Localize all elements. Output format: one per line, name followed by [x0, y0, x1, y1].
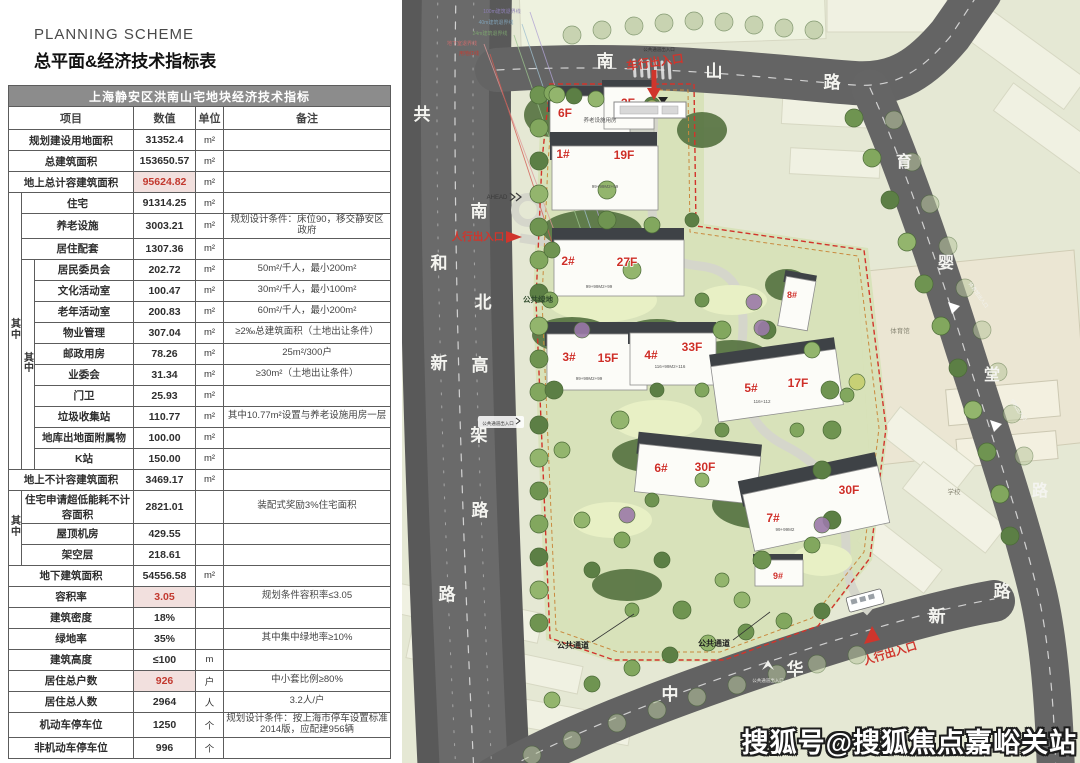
road-label-nanbei_gaojia: 南: [471, 201, 488, 221]
item-cell: 居住配套: [22, 238, 134, 259]
tree-icon: [611, 411, 629, 429]
building-label: 2#: [561, 254, 575, 268]
building-label: 99+99M2: [776, 527, 795, 532]
table-row: 架空层218.61: [9, 544, 391, 565]
tree-icon: [688, 688, 706, 706]
unit-cell: 户: [196, 670, 224, 691]
tree-icon: [530, 614, 548, 632]
tree-icon: [584, 676, 600, 692]
value-cell: 153650.57: [134, 151, 196, 172]
tree-icon: [746, 294, 762, 310]
tree-icon: [915, 275, 933, 293]
building-label: 116+112: [754, 399, 771, 404]
setback-label: 100m建筑退界线: [483, 8, 521, 15]
tree-icon: [734, 592, 750, 608]
unit-cell: m²: [196, 343, 224, 364]
tree-icon: [685, 12, 703, 30]
item-cell: 绿地率: [9, 628, 134, 649]
item-cell: 建筑高度: [9, 649, 134, 670]
tree-icon: [584, 562, 600, 578]
road-label-nanbei_gaojia: 高: [472, 355, 489, 375]
note-cell: [224, 544, 391, 565]
value-cell: 100.47: [134, 280, 196, 301]
note-cell: 3.2人/户: [224, 691, 391, 712]
watermark: 搜狐号@搜狐焦点嘉峪关站: [742, 721, 1077, 760]
tree-icon: [530, 119, 548, 137]
unit-cell: 人: [196, 691, 224, 712]
road-label-nanbei_gaojia: 路: [472, 500, 490, 520]
tree-icon: [625, 17, 643, 35]
item-cell: 居民委员会: [35, 259, 134, 280]
building-label: 17F: [788, 376, 809, 390]
tree-icon: [655, 14, 673, 32]
unit-cell: m²: [196, 469, 224, 490]
building-label: 30F: [839, 483, 860, 497]
tree-icon: [991, 485, 1009, 503]
tree-icon: [608, 714, 626, 732]
setback-label: 用地红线: [459, 50, 479, 57]
item-cell: 门卫: [35, 385, 134, 406]
tree-icon: [554, 442, 570, 458]
table-row: 非机动车停车位996个: [9, 737, 391, 758]
road-label-nanbei_gaojia: 北: [475, 293, 492, 312]
tree-icon: [949, 359, 967, 377]
value-cell: 218.61: [134, 544, 196, 565]
tree-icon: [588, 91, 604, 107]
unit-cell: [196, 628, 224, 649]
building-4: [628, 322, 716, 385]
value-cell: 35%: [134, 628, 196, 649]
tree-icon: [728, 676, 746, 694]
unit-cell: m²: [196, 301, 224, 322]
building-label: 9#: [773, 571, 783, 581]
tree-icon: [715, 573, 729, 587]
value-cell: 100.00: [134, 427, 196, 448]
road-label-yuyingtang: 堂: [984, 365, 1000, 384]
note-cell: [224, 565, 391, 586]
table-row: 总建筑面积153650.57m²: [9, 151, 391, 172]
tree-icon: [624, 660, 640, 676]
unit-cell: m²: [196, 364, 224, 385]
building-label: 116+99M2+116: [655, 364, 686, 369]
unit-cell: [196, 607, 224, 628]
group-label: 其中: [9, 193, 22, 470]
gym-label: 体育馆: [890, 326, 910, 335]
tree-icon: [654, 552, 670, 568]
item-cell: K站: [35, 448, 134, 469]
tree-icon: [545, 381, 563, 399]
tree-icon: [523, 746, 541, 763]
item-cell: 业委会: [35, 364, 134, 385]
tree-icon: [840, 388, 854, 402]
ahead-label: AHEAD: [487, 195, 508, 201]
value-cell: 200.83: [134, 301, 196, 322]
tree-icon: [530, 350, 548, 368]
building-label: 30F: [695, 460, 716, 474]
tree-icon: [823, 421, 841, 439]
tree-icon: [814, 603, 830, 619]
unit-cell: [196, 544, 224, 565]
table-row: 物业管理307.04m²≥2‰总建筑面积（土地出让条件）: [9, 322, 391, 343]
note-cell: 30m²/千人，最小100m²: [224, 280, 391, 301]
note-cell: [224, 130, 391, 151]
note-cell: 其中10.77m²设置与养老设施用房一层: [224, 406, 391, 427]
item-cell: 居住总户数: [9, 670, 134, 691]
tree-icon: [715, 13, 733, 31]
tree-icon: [598, 211, 616, 229]
unit-cell: m²: [196, 322, 224, 343]
value-cell: 2821.01: [134, 490, 196, 523]
table-row: 其中居民委员会202.72m²50m²/千人，最小200m²: [9, 259, 391, 280]
setback-label: 40m建筑退界线: [479, 19, 514, 26]
item-cell: 规划建设用地面积: [9, 130, 134, 151]
tree-icon: [530, 317, 548, 335]
building-label: 15F: [598, 351, 619, 365]
note-cell: 60m²/千人，最小200m²: [224, 301, 391, 322]
item-cell: 机动车停车位: [9, 712, 134, 737]
tree-icon: [644, 217, 660, 233]
tree-icon: [939, 237, 957, 255]
pedestrian-entrance-label: 人行出入口: [452, 230, 505, 243]
tree-icon: [574, 322, 590, 338]
note-cell: 规划设计条件：床位90，移交静安区政府: [224, 214, 391, 239]
tree-icon: [808, 655, 826, 673]
value-cell: 3469.17: [134, 469, 196, 490]
building-label: 99+99M2+99: [576, 376, 603, 381]
unit-cell: 个: [196, 712, 224, 737]
value-cell: 996: [134, 737, 196, 758]
public-channel-label-2: 公共通道: [698, 638, 730, 648]
road-label-gonghexin: 和: [431, 254, 448, 273]
school-label: 学校: [948, 487, 962, 496]
table-row: 地下建筑面积54556.58m²: [9, 565, 391, 586]
road-label-nanshan: 路: [824, 72, 842, 92]
building-label: 19F: [614, 148, 635, 162]
tree-icon: [530, 218, 548, 236]
item-cell: 建筑密度: [9, 607, 134, 628]
item-cell: 屋顶机房: [22, 523, 134, 544]
tree-icon: [530, 581, 548, 599]
value-cell: 926: [134, 670, 196, 691]
unit-cell: m²: [196, 406, 224, 427]
public-channel-entrance-label-south: 公共通道出入口: [752, 677, 784, 684]
table-row: 门卫25.93m²: [9, 385, 391, 406]
tree-icon: [849, 374, 865, 390]
unit-cell: m²: [196, 448, 224, 469]
table-row: 规划建设用地面积31352.4m²: [9, 130, 391, 151]
item-cell: 地上总计容建筑面积: [9, 172, 134, 193]
table-row: K站150.00m²: [9, 448, 391, 469]
item-cell: 邮政用房: [35, 343, 134, 364]
table-row: 建筑密度18%: [9, 607, 391, 628]
table-row: 居住总人数2964人3.2人/户: [9, 691, 391, 712]
note-cell: 其中集中绿地率≥10%: [224, 628, 391, 649]
tree-icon: [814, 517, 830, 533]
page-title-zh: 总平面&经济技术指标表: [34, 47, 216, 72]
table-row: 屋顶机房429.55: [9, 523, 391, 544]
tree-icon: [964, 401, 982, 419]
building-label: 6#: [654, 461, 668, 475]
note-cell: 25m²/300户: [224, 343, 391, 364]
tree-icon: [805, 21, 823, 39]
value-cell: 110.77: [134, 406, 196, 427]
value-cell: 78.26: [134, 343, 196, 364]
note-cell: [224, 193, 391, 214]
tree-icon: [695, 293, 709, 307]
tree-icon: [898, 233, 916, 251]
tree-icon: [845, 109, 863, 127]
note-cell: [224, 151, 391, 172]
note-cell: [224, 385, 391, 406]
item-cell: 架空层: [22, 544, 134, 565]
value-cell: 54556.58: [134, 565, 196, 586]
item-cell: 地下建筑面积: [9, 565, 134, 586]
table-row: 绿地率35%其中集中绿地率≥10%: [9, 628, 391, 649]
item-cell: 地上不计容建筑面积: [9, 469, 134, 490]
table-row: 机动车停车位1250个规划设计条件：按上海市停车设置标准2014版，应配建956…: [9, 712, 391, 737]
tree-icon: [544, 692, 560, 708]
building-label: 养老设施用房: [583, 116, 617, 124]
road-label-gonghexin: 新: [431, 353, 448, 373]
tree-icon: [563, 26, 581, 44]
road-label-nanshan: 南: [597, 51, 614, 71]
road-label-yuyingtang: 婴: [938, 254, 954, 272]
table-row: 地库出地面附属物100.00m²: [9, 427, 391, 448]
tree-icon: [745, 16, 763, 34]
table-header-row: 项目 数值 单位 备注: [9, 107, 391, 130]
note-cell: [224, 427, 391, 448]
value-cell: 31.34: [134, 364, 196, 385]
planning-scheme-page: PLANNING SCHEME 总平面&经济技术指标表 上海静安区洪南山宅地块经…: [0, 0, 1080, 763]
table-row: 地上不计容建筑面积3469.17m²: [9, 469, 391, 490]
public-green-label: 公共绿地: [523, 294, 553, 304]
item-cell: 文化活动室: [35, 280, 134, 301]
tree-icon: [804, 537, 820, 553]
tree-icon: [544, 242, 560, 258]
note-cell: 规划条件容积率≤3.05: [224, 586, 391, 607]
item-cell: 非机动车停车位: [9, 737, 134, 758]
note-cell: ≥30m²（土地出让条件）: [224, 364, 391, 385]
indicator-panel: PLANNING SCHEME 总平面&经济技术指标表 上海静安区洪南山宅地块经…: [0, 0, 402, 763]
unit-cell: m²: [196, 172, 224, 193]
table-title: 上海静安区洪南山宅地块经济技术指标: [9, 86, 391, 107]
value-cell: 1307.36: [134, 238, 196, 259]
tree-icon: [650, 383, 664, 397]
tree-icon: [754, 320, 770, 336]
public-channel-label-1: 公共通道: [557, 640, 589, 650]
building-label: 5#: [744, 381, 758, 395]
tree-icon: [673, 601, 691, 619]
value-cell: 150.00: [134, 448, 196, 469]
value-cell: 18%: [134, 607, 196, 628]
item-cell: 容积率: [9, 586, 134, 607]
tree-icon: [530, 449, 548, 467]
value-cell: ≤100: [134, 649, 196, 670]
tree-icon: [973, 321, 991, 339]
tree-icon: [921, 195, 939, 213]
unit-cell: m²: [196, 214, 224, 239]
building-label: 33F: [682, 340, 703, 354]
building-label: 7#: [766, 511, 780, 525]
table-row: 文化活动室100.47m²30m²/千人，最小100m²: [9, 280, 391, 301]
tree-icon: [695, 473, 709, 487]
col-value: 数值: [134, 107, 196, 130]
tree-icon: [566, 88, 582, 104]
tree-icon: [804, 342, 820, 358]
item-cell: 住宅: [22, 193, 134, 214]
col-unit: 单位: [196, 107, 224, 130]
tree-icon: [619, 507, 635, 523]
note-cell: ≥2‰总建筑面积（土地出让条件）: [224, 322, 391, 343]
unit-cell: m²: [196, 238, 224, 259]
note-cell: [224, 469, 391, 490]
item-cell: 总建筑面积: [9, 151, 134, 172]
col-item: 项目: [9, 107, 134, 130]
note-cell: 中小套比例≥80%: [224, 670, 391, 691]
tree-icon: [881, 191, 899, 209]
building-label: 4#: [644, 348, 658, 362]
unit-cell: m²: [196, 130, 224, 151]
road-label-yuyingtang: 路: [1032, 481, 1049, 500]
value-cell: 25.93: [134, 385, 196, 406]
table-row: 老年活动室200.83m²60m²/千人，最小200m²: [9, 301, 391, 322]
setback-label: 地下室退界线: [447, 40, 477, 47]
unit-cell: m²: [196, 259, 224, 280]
item-cell: 住宅申请超低能耗不计容面积: [22, 490, 134, 523]
tree-icon: [813, 461, 831, 479]
setback-label: 24m建筑退界线: [473, 30, 508, 37]
tree-icon: [645, 493, 659, 507]
table-row: 居住总户数926户中小套比例≥80%: [9, 670, 391, 691]
public-channel-entrance-label-west: 公共通道出入口: [482, 420, 514, 427]
road-label-zhonghuaxin: 路: [994, 581, 1012, 601]
note-cell: [224, 737, 391, 758]
tree-icon: [885, 111, 903, 129]
road-label-gonghexin: 路: [439, 584, 457, 604]
value-cell: 91314.25: [134, 193, 196, 214]
page-title-en: PLANNING SCHEME: [34, 26, 194, 43]
tree-icon: [775, 19, 793, 37]
tree-icon: [932, 317, 950, 335]
value-cell: 3.05: [134, 586, 196, 607]
building-label: 27F: [617, 255, 638, 269]
tree-icon: [1001, 527, 1019, 545]
tree-icon: [530, 416, 548, 434]
tree-icon: [821, 381, 839, 399]
building-label: 8#: [787, 290, 797, 300]
unit-cell: m²: [196, 280, 224, 301]
table-row: 建筑高度≤100m: [9, 649, 391, 670]
table-row: 邮政用房78.26m²25m²/300户: [9, 343, 391, 364]
tree-icon: [695, 383, 709, 397]
unit-cell: 个: [196, 737, 224, 758]
item-cell: 老年活动室: [35, 301, 134, 322]
table-row: 容积率3.05规划条件容积率≤3.05: [9, 586, 391, 607]
table-row: 垃圾收集站110.77m²其中10.77m²设置与养老设施用房一层: [9, 406, 391, 427]
unit-cell: m²: [196, 151, 224, 172]
table-row: 地上总计容建筑面积95624.82m²: [9, 172, 391, 193]
indicator-table: 上海静安区洪南山宅地块经济技术指标 项目 数值 单位 备注 规划建设用地面积31…: [8, 85, 391, 759]
tree-icon: [753, 551, 771, 569]
note-cell: [224, 523, 391, 544]
building-label: 3#: [562, 350, 576, 364]
note-cell: [224, 649, 391, 670]
note-cell: [224, 448, 391, 469]
value-cell: 3003.21: [134, 214, 196, 239]
group-label: 其中: [22, 259, 35, 469]
channel-entrance-west-road: 公共通道出入口: [478, 416, 524, 428]
col-note: 备注: [224, 107, 391, 130]
building-label: 1#: [556, 147, 570, 161]
unit-cell: [196, 586, 224, 607]
unit-cell: m: [196, 649, 224, 670]
table-row: 居住配套1307.36m²: [9, 238, 391, 259]
note-cell: 规划设计条件：按上海市停车设置标准2014版，应配建956辆: [224, 712, 391, 737]
tree-icon: [530, 152, 548, 170]
tree-icon: [713, 321, 731, 339]
road-label-zhonghuaxin: 华: [787, 659, 804, 679]
road-label-zhonghuaxin: 新: [929, 606, 946, 626]
tree-icon: [549, 87, 565, 103]
value-cell: 202.72: [134, 259, 196, 280]
road-label-nanshan: 山: [706, 62, 723, 81]
table-title-row: 上海静安区洪南山宅地块经济技术指标: [9, 86, 391, 107]
item-cell: 地库出地面附属物: [35, 427, 134, 448]
value-cell: 307.04: [134, 322, 196, 343]
table-row: 业委会31.34m²≥30m²（土地出让条件）: [9, 364, 391, 385]
item-cell: 物业管理: [35, 322, 134, 343]
table-row: 其中住宅申请超低能耗不计容面积2821.01装配式奖励3%住宅面积: [9, 490, 391, 523]
note-cell: [224, 172, 391, 193]
tree-icon: [776, 613, 792, 629]
tree-icon: [715, 423, 729, 437]
tree-icon: [530, 515, 548, 533]
building-label: 99+99M2+99: [592, 184, 619, 189]
unit-cell: m²: [196, 193, 224, 214]
table-row: 其中住宅91314.25m²: [9, 193, 391, 214]
item-cell: 养老设施: [22, 214, 134, 239]
note-cell: [224, 607, 391, 628]
tree-icon: [593, 21, 611, 39]
unit-cell: m²: [196, 385, 224, 406]
road-label-yuyingtang: 育: [896, 152, 912, 171]
road-label-gonghexin: 共: [414, 105, 431, 124]
site-plan-map: 共和新路南北高架路南山路育婴堂路中华新路 6F养老设施用房3F1#19F99+9…: [402, 0, 1080, 763]
group-label: 其中: [9, 490, 22, 565]
table-row: 养老设施3003.21m²规划设计条件：床位90，移交静安区政府: [9, 214, 391, 239]
tree-icon: [1015, 447, 1033, 465]
building-label: 99+99M2+99: [586, 284, 613, 289]
value-cell: 95624.82: [134, 172, 196, 193]
building-label: 6F: [558, 106, 572, 120]
value-cell: 429.55: [134, 523, 196, 544]
road-label-zhonghuaxin: 中: [662, 684, 679, 704]
note-cell: 装配式奖励3%住宅面积: [224, 490, 391, 523]
tree-icon: [662, 647, 678, 663]
tree-icon: [685, 213, 699, 227]
tree-icon: [863, 149, 881, 167]
tree-icon: [978, 443, 996, 461]
value-cell: 2964: [134, 691, 196, 712]
unit-cell: m²: [196, 427, 224, 448]
item-cell: 垃圾收集站: [35, 406, 134, 427]
tree-icon: [563, 731, 581, 749]
tree-icon: [530, 482, 548, 500]
tree-icon: [614, 532, 630, 548]
value-cell: 1250: [134, 712, 196, 737]
unit-cell: [196, 490, 224, 523]
tree-icon: [790, 423, 804, 437]
